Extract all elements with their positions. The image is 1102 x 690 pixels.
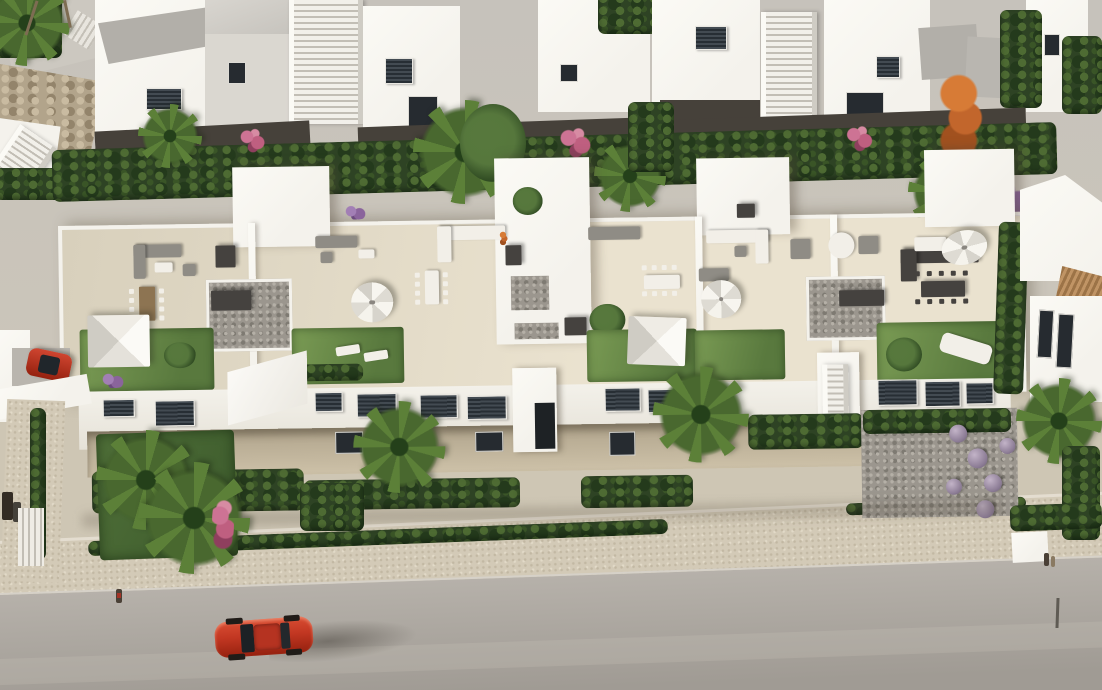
armchair [320,252,332,263]
dark-sofa [900,249,916,281]
cypress-column [628,102,674,172]
window [695,26,727,50]
stair-tower [232,166,330,247]
window [228,62,246,84]
scene: Bird's-eye 3D rendering of a Mediterrane… [0,0,1102,690]
window [1037,310,1054,359]
sofa [588,226,640,240]
front-hedge [863,408,1011,434]
window [1056,314,1075,369]
dining-chairs [642,265,647,270]
bougainvillea [212,486,234,560]
pedestrian [1051,556,1055,567]
window [877,379,917,406]
right-hedge [1010,502,1102,531]
ac-unit [505,245,521,265]
sofa [315,236,357,249]
orange-tree [929,64,995,162]
armchair [790,239,810,259]
dining-chairs [415,273,420,278]
armchair [734,246,746,257]
front-hedge [748,413,864,450]
window [560,64,578,82]
window [924,381,960,408]
gravel-roof [806,276,886,341]
armchair [183,264,196,276]
window [876,56,900,78]
window [467,395,507,420]
coffee-table [155,262,173,272]
car-wheel [228,654,245,661]
window [604,387,640,412]
outdoor-cabinet [215,245,235,267]
pergola-slab [839,290,884,307]
coffee-table [358,249,374,258]
bougainvillea [551,122,601,162]
dining-table [425,270,440,304]
parked-car-glass [37,354,60,376]
bicycles [2,492,13,520]
patio-door [609,431,635,455]
roof-hatch [564,317,586,335]
pedestrian [1044,553,1049,566]
window [314,392,342,412]
ac-unit [737,204,755,218]
stair-tower [924,149,1015,227]
outdoor-staircase [289,0,363,124]
car-roof [253,623,282,651]
window [1044,34,1060,56]
core-gravel-roof [511,276,550,311]
pergola-slab [211,290,251,311]
patio-door [475,431,503,451]
car-wheel [286,649,302,656]
bg-house-shaded [205,34,293,136]
garden-bed [300,483,364,531]
car-wheel [283,615,299,622]
dining-table [644,275,680,290]
cypress-column [1062,36,1102,114]
courtyard-hedge [598,0,658,34]
dining-chairs [129,289,134,294]
red-car-street [213,611,318,666]
dining-chairs [915,271,920,276]
window [965,382,993,404]
palm-tree [138,104,202,168]
pedestrian-detail [117,593,121,598]
entry-doorway [535,403,556,449]
front-hedge [581,475,693,509]
armchair [858,236,878,254]
cypress-column [1000,10,1042,108]
window [155,400,195,427]
white-sofa [755,229,769,263]
dining-table-dark [921,281,965,298]
window [103,399,135,417]
flower-pot [496,230,511,245]
window [385,58,413,84]
bench-steps [18,508,44,566]
bougainvillea [839,121,881,155]
wicker-sofa [133,245,146,279]
car-rear-window [280,622,291,649]
pyramid-parasol [87,315,150,368]
bougainvillea [233,124,273,156]
shade-sail [627,316,687,366]
white-sofa [437,226,452,262]
car-wheel [226,618,243,625]
stair-tower [696,157,790,235]
core-gravel-roof [514,323,558,340]
